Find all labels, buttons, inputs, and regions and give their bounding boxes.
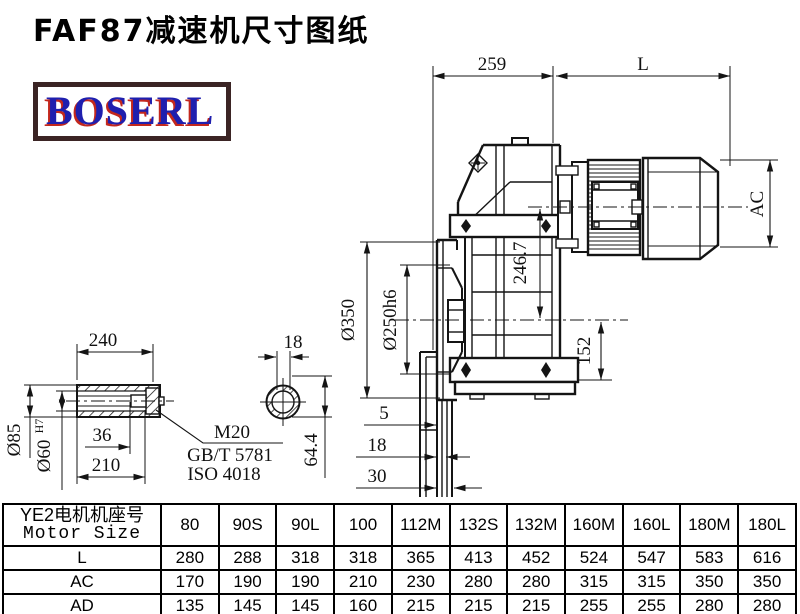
cell-L-132S: 413 xyxy=(450,546,508,570)
dim-250h6-label: Ø250h6 xyxy=(380,289,401,350)
cell-L-132M: 452 xyxy=(507,546,565,570)
cell-AC-112M: 230 xyxy=(392,570,450,594)
dim-AC-label: AC xyxy=(747,191,768,217)
cell-AC-160L: 315 xyxy=(623,570,681,594)
row-label-L: L xyxy=(3,546,161,570)
frame-size-90S: 90S xyxy=(219,504,277,546)
dim-36: 36 xyxy=(85,402,130,454)
frame-size-80: 80 xyxy=(161,504,219,546)
frame-size-112M: 112M xyxy=(392,504,450,546)
frame-size-160M: 160M xyxy=(565,504,623,546)
cell-AD-90L: 145 xyxy=(276,594,334,614)
cell-L-160L: 547 xyxy=(623,546,681,570)
dim-64-4-label: 64.4 xyxy=(301,433,322,467)
cell-AD-90S: 145 xyxy=(219,594,277,614)
dim-240-label: 240 xyxy=(89,330,118,351)
frame-size-180M: 180M xyxy=(680,504,738,546)
cell-AC-100: 210 xyxy=(334,570,392,594)
dim-5: 5 xyxy=(364,403,436,425)
cell-AD-80: 135 xyxy=(161,594,219,614)
row-label-AD: AD xyxy=(3,594,161,614)
cell-L-160M: 524 xyxy=(565,546,623,570)
dim-152-label: 152 xyxy=(574,337,595,366)
dim-30-label: 30 xyxy=(368,466,387,487)
cell-AD-160M: 255 xyxy=(565,594,623,614)
dim-60-tolerance: H7 xyxy=(32,419,46,434)
table-row-AD: AD135145145160215215215255255280280 xyxy=(3,594,796,614)
motor xyxy=(556,158,718,259)
cell-L-100: 318 xyxy=(334,546,392,570)
motor-size-table: YE2电机机座号Motor Size8090S90L100112M132S132… xyxy=(2,503,797,614)
dim-18-flange-label: 18 xyxy=(368,435,387,456)
cell-AC-160M: 315 xyxy=(565,570,623,594)
thread-label: M20 xyxy=(214,422,250,443)
drawing-sheet: FAF87减速机尺寸图纸 BOSERL xyxy=(0,0,800,614)
cell-AD-100: 160 xyxy=(334,594,392,614)
dim-64-4: 64.4 xyxy=(292,376,332,478)
cell-L-90L: 318 xyxy=(276,546,334,570)
cell-AC-132S: 280 xyxy=(450,570,508,594)
cell-AC-180M: 350 xyxy=(680,570,738,594)
cell-AC-132M: 280 xyxy=(507,570,565,594)
cell-AD-180L: 280 xyxy=(738,594,796,614)
dim-18-key-label: 18 xyxy=(284,332,303,353)
dim-350-label: Ø350 xyxy=(338,299,359,341)
table-row-L: L280288318318365413452524547583616 xyxy=(3,546,796,570)
frame-size-132M: 132M xyxy=(507,504,565,546)
dim-259-label: 259 xyxy=(478,54,507,75)
cell-AD-160L: 255 xyxy=(623,594,681,614)
cell-L-180L: 616 xyxy=(738,546,796,570)
thread-callout: M20 GB/T 5781 ISO 4018 xyxy=(156,410,283,485)
standard-gb-label: GB/T 5781 xyxy=(187,445,273,466)
cell-AD-112M: 215 xyxy=(392,594,450,614)
shaft-detail: 240 Ø85 Ø60 H7 36 xyxy=(4,330,283,490)
row-label-AC: AC xyxy=(3,570,161,594)
table-row-AC: AC170190190210230280280315315350350 xyxy=(3,570,796,594)
dim-259: 259 xyxy=(433,54,553,76)
dim-L: L xyxy=(556,54,730,76)
dim-60H7: Ø60 H7 xyxy=(32,391,77,490)
dim-152: 152 xyxy=(574,322,612,380)
cell-L-112M: 365 xyxy=(392,546,450,570)
cell-AC-80: 170 xyxy=(161,570,219,594)
motor-size-header-cell: YE2电机机座号Motor Size xyxy=(3,504,161,546)
table-header-cn: YE2电机机座号 xyxy=(4,506,160,525)
cell-L-180M: 583 xyxy=(680,546,738,570)
table-header-en: Motor Size xyxy=(4,525,160,544)
dimensions-main: 259 L AC Ø350 Ø250h6 xyxy=(338,54,778,488)
dim-5-label: 5 xyxy=(379,403,389,424)
cell-AD-132M: 215 xyxy=(507,594,565,614)
cell-AC-180L: 350 xyxy=(738,570,796,594)
frame-size-160L: 160L xyxy=(623,504,681,546)
frame-size-100: 100 xyxy=(334,504,392,546)
dim-246-7-label: 246.7 xyxy=(510,242,531,285)
cell-AD-180M: 280 xyxy=(680,594,738,614)
frame-size-132S: 132S xyxy=(450,504,508,546)
dim-L-label: L xyxy=(637,54,649,75)
cell-L-80: 280 xyxy=(161,546,219,570)
cell-AC-90L: 190 xyxy=(276,570,334,594)
dim-240: 240 xyxy=(77,330,153,382)
dim-210-label: 210 xyxy=(92,455,121,476)
cell-L-90S: 288 xyxy=(219,546,277,570)
dimension-drawing: 259 L AC Ø350 Ø250h6 xyxy=(0,0,800,505)
cell-AD-132S: 215 xyxy=(450,594,508,614)
dim-AC: AC xyxy=(720,160,778,247)
frame-size-90L: 90L xyxy=(276,504,334,546)
dim-60-label: Ø60 xyxy=(34,440,55,473)
dim-85-label: Ø85 xyxy=(4,424,25,457)
dim-36-label: 36 xyxy=(93,425,112,446)
standard-iso-label: ISO 4018 xyxy=(187,464,260,485)
frame-size-180L: 180L xyxy=(738,504,796,546)
cell-AC-90S: 190 xyxy=(219,570,277,594)
